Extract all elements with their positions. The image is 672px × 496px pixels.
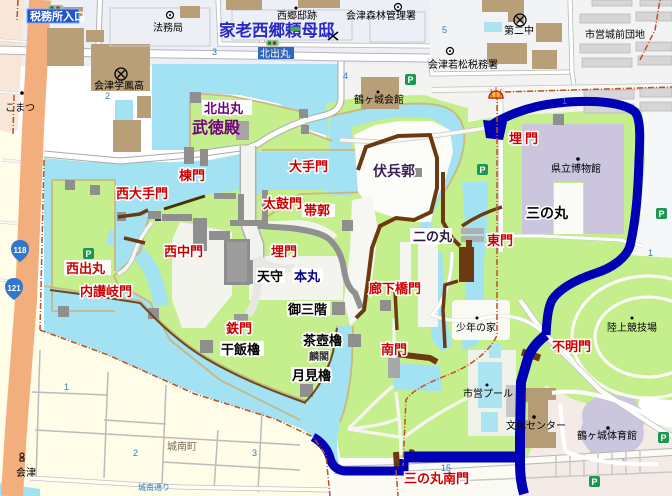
svg-text:陸上競技場: 陸上競技場 xyxy=(607,321,657,334)
svg-text:埋門: 埋門 xyxy=(509,131,541,146)
svg-text:2: 2 xyxy=(105,91,110,101)
svg-text:武徳殿: 武徳殿 xyxy=(192,118,241,137)
svg-text:2: 2 xyxy=(133,448,138,458)
svg-text:太鼓門: 太鼓門 xyxy=(262,196,302,211)
svg-text:3: 3 xyxy=(252,448,257,458)
svg-text:121: 121 xyxy=(7,284,21,293)
svg-text:4: 4 xyxy=(343,71,348,81)
svg-text:御三階: 御三階 xyxy=(287,302,327,317)
svg-text:二の丸: 二の丸 xyxy=(413,229,453,244)
svg-text:P: P xyxy=(86,249,92,259)
svg-text:大手門: 大手門 xyxy=(289,159,328,174)
svg-text:P: P xyxy=(592,477,598,487)
svg-text:法務局: 法務局 xyxy=(153,21,183,34)
svg-text:西出丸: 西出丸 xyxy=(66,261,106,276)
svg-text:会津森林管理署: 会津森林管理署 xyxy=(346,9,416,22)
svg-text:P: P xyxy=(408,75,414,85)
svg-text:118: 118 xyxy=(14,246,27,255)
svg-text:干飯櫓: 干飯櫓 xyxy=(221,342,260,357)
svg-text:第二中: 第二中 xyxy=(504,24,534,37)
svg-text:本丸: 本丸 xyxy=(294,269,321,284)
svg-text:P: P xyxy=(659,209,665,219)
svg-text:西中門: 西中門 xyxy=(164,244,203,259)
svg-text:文化センター: 文化センター xyxy=(506,419,566,432)
svg-text:伏兵郭: 伏兵郭 xyxy=(373,163,415,179)
svg-text:棟門: 棟門 xyxy=(179,168,205,183)
svg-text:三の丸: 三の丸 xyxy=(526,205,569,221)
svg-text:P: P xyxy=(661,433,667,443)
svg-text:会津学鳳高: 会津学鳳高 xyxy=(94,79,144,92)
svg-text:不明門: 不明門 xyxy=(552,339,591,354)
svg-text:南門: 南門 xyxy=(381,342,407,357)
svg-text:市営城前団地: 市営城前団地 xyxy=(585,28,645,41)
svg-text:3: 3 xyxy=(212,47,217,57)
svg-text:15: 15 xyxy=(441,463,451,473)
svg-text:東門: 東門 xyxy=(487,233,513,248)
svg-text:鶴ヶ城会館: 鶴ヶ城会館 xyxy=(354,93,404,106)
svg-text:北出丸: 北出丸 xyxy=(204,101,244,116)
svg-text:三の丸南門: 三の丸南門 xyxy=(404,471,469,486)
svg-text:城南町: 城南町 xyxy=(167,440,197,453)
svg-text:会津: 会津 xyxy=(16,466,36,479)
svg-text:少年の家: 少年の家 xyxy=(456,321,496,334)
svg-text:1: 1 xyxy=(64,382,69,392)
svg-text:内讃岐門: 内讃岐門 xyxy=(80,284,132,299)
svg-text:茶壺櫓: 茶壺櫓 xyxy=(303,333,342,348)
svg-text:麟閣: 麟閣 xyxy=(309,350,329,363)
svg-text:鶴ヶ城体育館: 鶴ヶ城体育館 xyxy=(577,429,637,442)
svg-text:会津若松税務署: 会津若松税務署 xyxy=(428,58,498,71)
svg-text:1: 1 xyxy=(562,96,567,106)
svg-text:月見櫓: 月見櫓 xyxy=(291,368,331,383)
svg-text:帯郭: 帯郭 xyxy=(304,203,330,218)
svg-text:こまつ: こまつ xyxy=(5,102,35,114)
svg-text:西郷邸跡: 西郷邸跡 xyxy=(277,9,317,22)
svg-text:天守: 天守 xyxy=(257,269,283,284)
svg-text:北出丸: 北出丸 xyxy=(260,47,290,60)
svg-text:県立博物館: 県立博物館 xyxy=(551,162,601,175)
svg-text:P: P xyxy=(480,165,486,175)
svg-text:埋門: 埋門 xyxy=(271,244,297,259)
svg-text:税務所入口: 税務所入口 xyxy=(30,9,85,23)
svg-text:1: 1 xyxy=(648,248,653,258)
svg-text:市営プール: 市営プール xyxy=(463,387,513,400)
svg-text:城南通り: 城南通り xyxy=(138,482,170,492)
svg-text:西大手門: 西大手門 xyxy=(116,186,168,201)
svg-text:廊下橋門: 廊下橋門 xyxy=(369,281,421,296)
svg-text:5: 5 xyxy=(442,25,447,35)
svg-text:家老西郷頼母邸: 家老西郷頼母邸 xyxy=(219,20,335,40)
svg-text:鉄門: 鉄門 xyxy=(226,321,252,336)
